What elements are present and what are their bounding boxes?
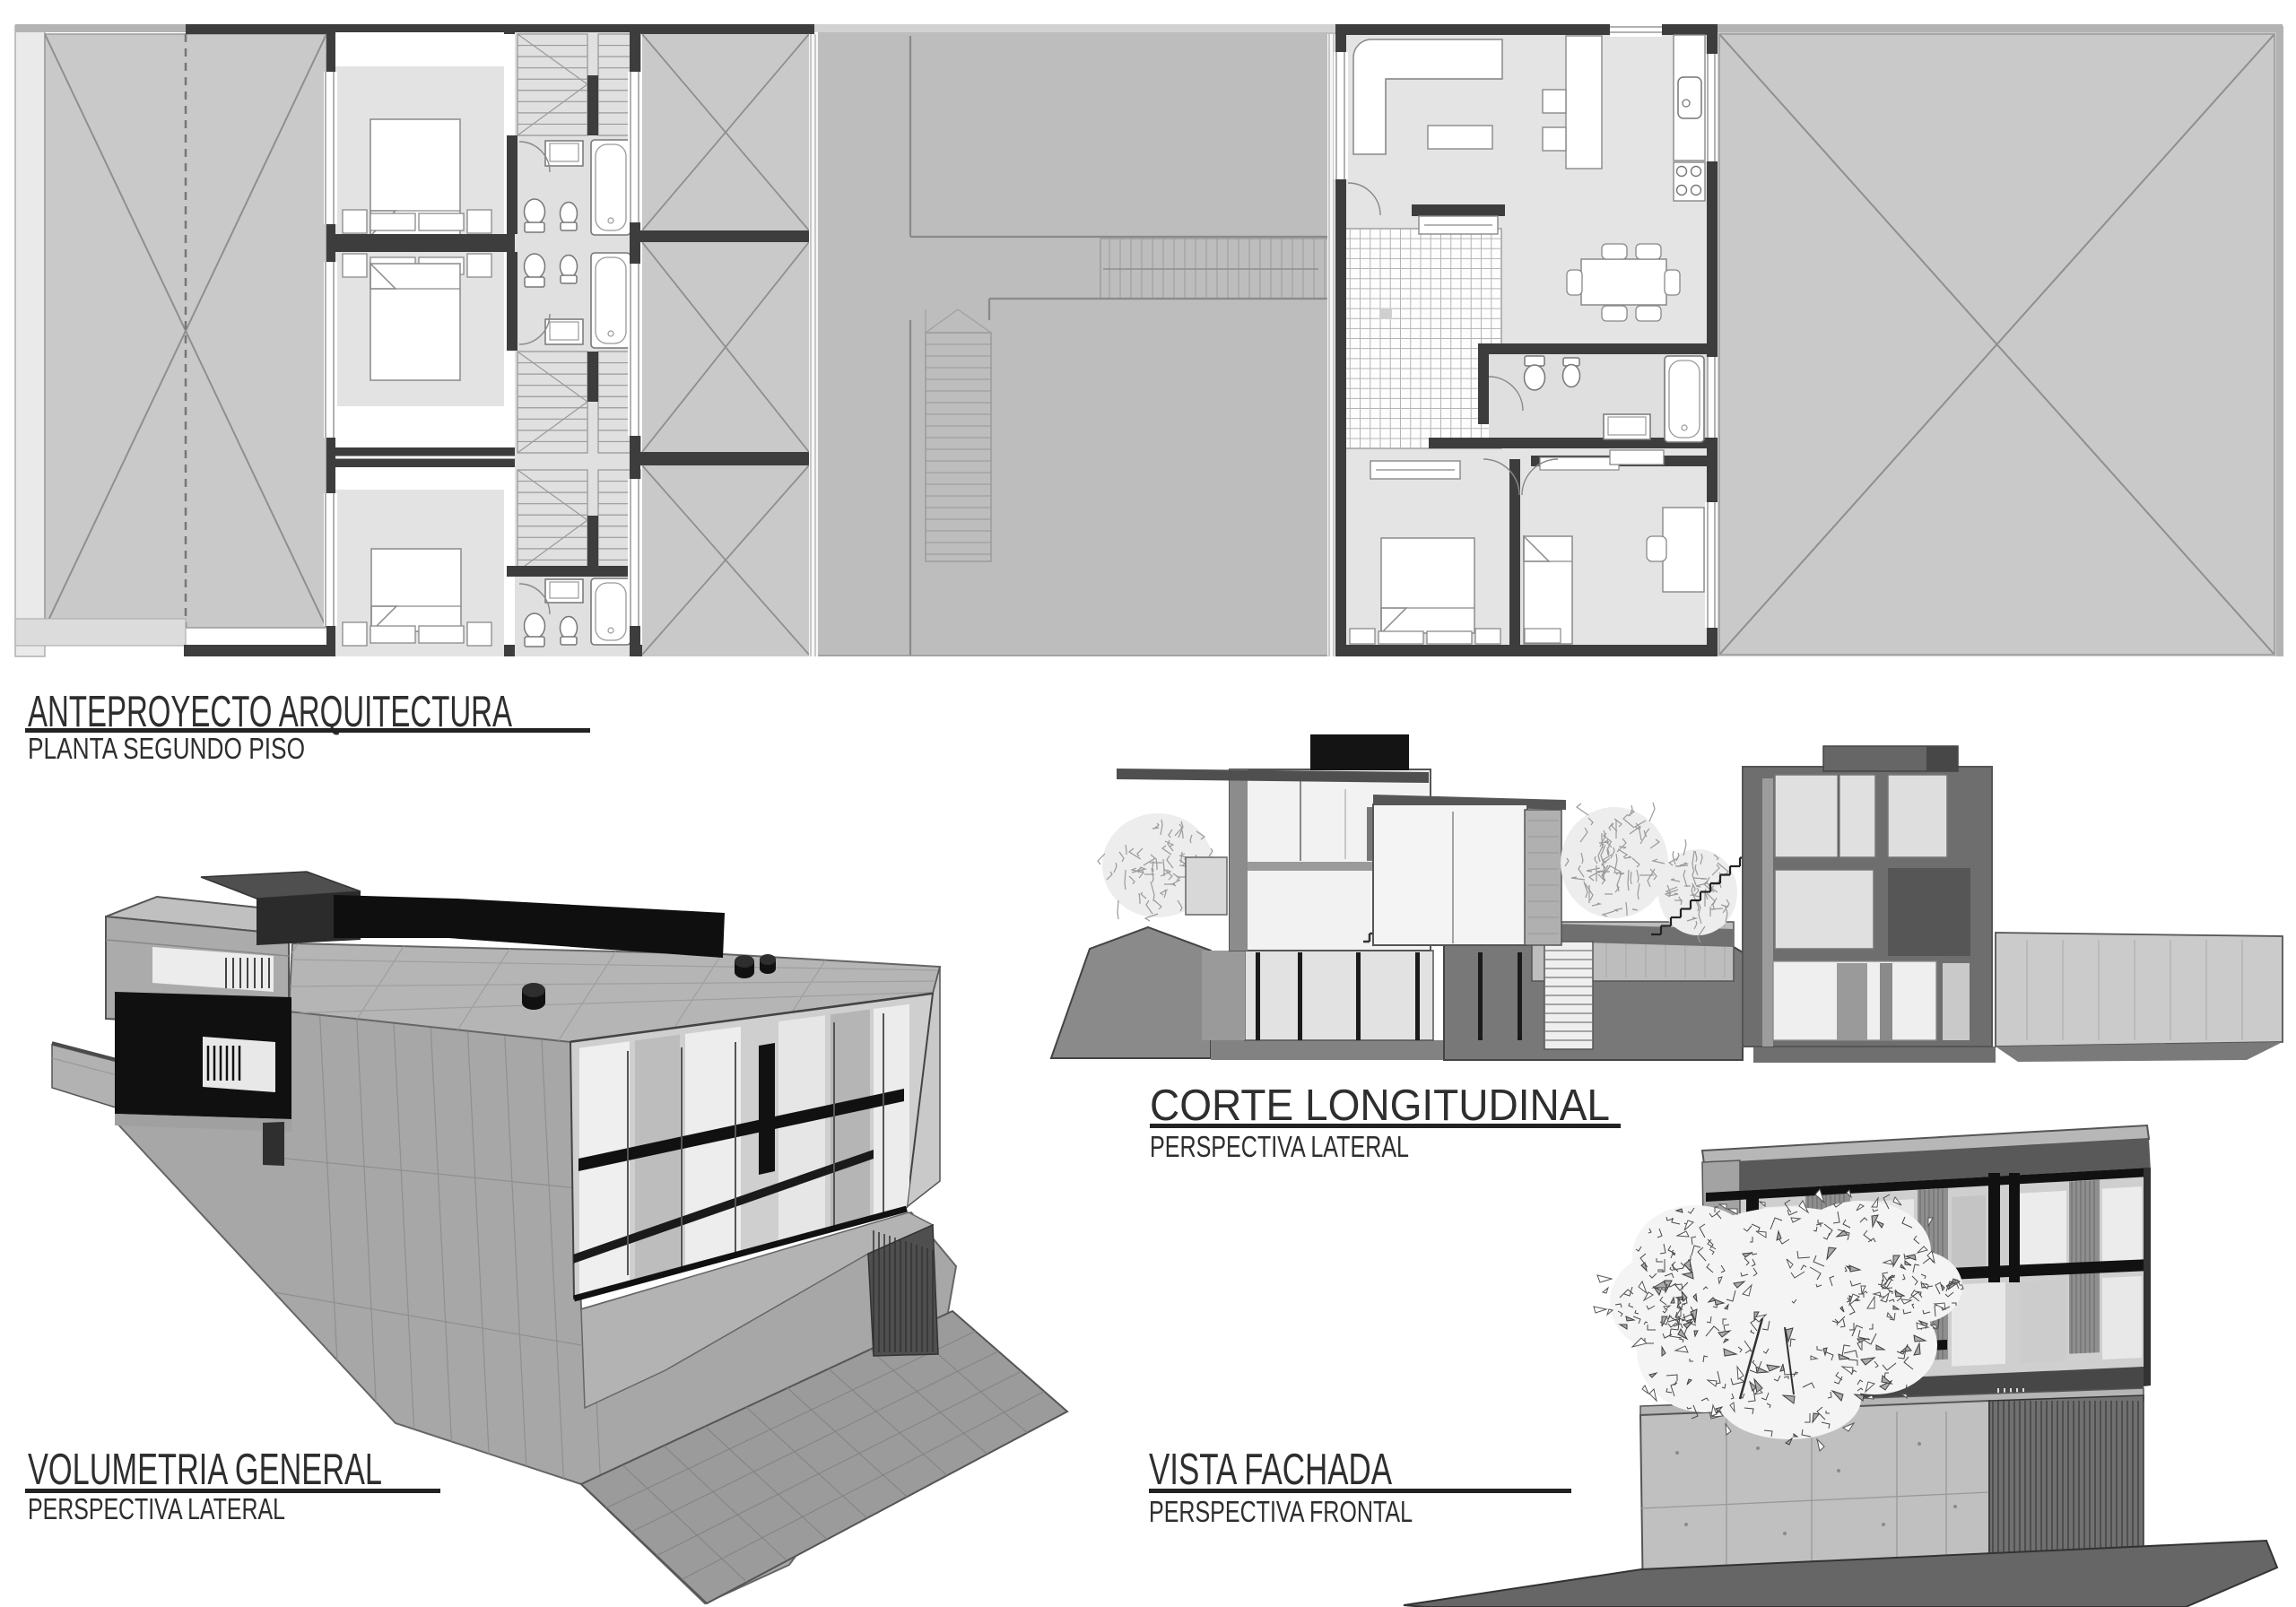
svg-text:PERSPECTIVA LATERAL: PERSPECTIVA LATERAL [1150,1130,1409,1163]
svg-text:PERSPECTIVA FRONTAL: PERSPECTIVA FRONTAL [1149,1495,1413,1528]
svg-text:VISTA FACHADA: VISTA FACHADA [1149,1446,1392,1494]
svg-text:PERSPECTIVA LATERAL: PERSPECTIVA LATERAL [28,1492,285,1525]
svg-text:CORTE LONGITUDINAL: CORTE LONGITUDINAL [1150,1081,1610,1130]
svg-text:PLANTA SEGUNDO PISO: PLANTA SEGUNDO PISO [28,732,305,765]
svg-text:VOLUMETRIA GENERAL: VOLUMETRIA GENERAL [28,1446,382,1494]
